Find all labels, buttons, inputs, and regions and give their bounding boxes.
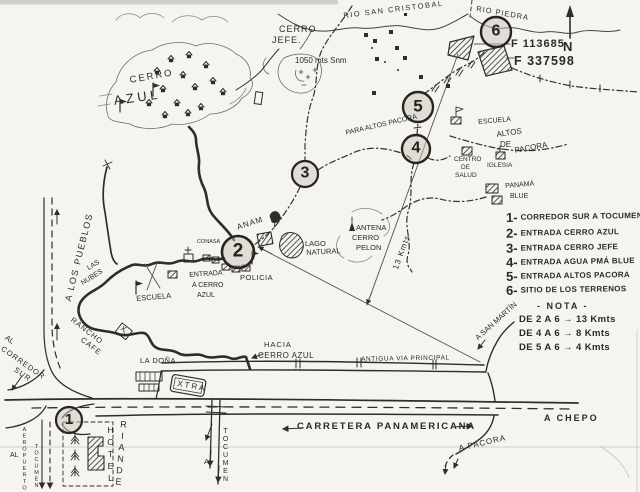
- label-altos-2: DE: [500, 141, 511, 149]
- survey-lines: [258, 54, 480, 362]
- line-13km: [367, 54, 458, 305]
- label-cerro-pelon-1: CERRO: [352, 234, 379, 242]
- trail-hut: [254, 92, 263, 105]
- legend-item-text: ENTRADA AGUA PMÁ BLUE: [521, 256, 635, 267]
- trail-ties: [413, 61, 600, 136]
- label-f1: F 113685: [511, 39, 565, 50]
- trail-panama-blue: [382, 197, 486, 220]
- label-a-tocumen: TOCUMEN: [222, 428, 229, 484]
- label-conasa: CONASA: [197, 240, 220, 246]
- legend-item-number: 2-: [506, 226, 518, 241]
- legend-item-text: ENTRADA CERRO AZUL: [521, 227, 620, 237]
- label-entrada-2: A CERRO: [192, 282, 224, 289]
- marker-number-6: 6: [492, 23, 501, 41]
- label-entrada-3: AZUL: [197, 292, 215, 299]
- legend-item-number: 5-: [506, 269, 518, 284]
- label-panama-blue-2: BLUE: [510, 193, 528, 200]
- road-antigua-via: [156, 358, 495, 401]
- legend-item-text: SITIO DE LOS TERRENOS: [521, 284, 627, 294]
- hand-drawn-map: RIO PIEDRA F 113685 F 337598 N RIO SAN C…: [0, 0, 640, 492]
- legend-item-number: 6-: [506, 283, 518, 298]
- trail-5-to-6: [424, 51, 485, 94]
- label-a-tocumen-a: A: [204, 458, 209, 466]
- legend-item-text: CORREDOR SUR A TOCUMEN: [521, 211, 640, 222]
- label-antena: ANTENA: [356, 224, 386, 232]
- label-centro-3: SALUD: [455, 173, 477, 180]
- scattered-houses: [364, 13, 450, 95]
- trail-site-east: [512, 68, 638, 92]
- cluster-boundary: [106, 43, 252, 129]
- legend-note-1: DE 2 A 6 → 13 Kmts: [519, 314, 616, 325]
- lago-natural: [280, 233, 304, 258]
- legend-note-2: DE 4 A 6 → 8 Kmts: [519, 328, 610, 339]
- legend-item-1: 1- CORREDOR SUR A TOCUMEN: [506, 208, 640, 225]
- escuela-pacora-building: [451, 117, 461, 124]
- trail-to-jefe: [236, 49, 279, 90]
- trail-4-to-5: [417, 122, 418, 135]
- legend-note-3: DE 5 A 6 → 4 Kmts: [519, 342, 610, 353]
- label-cerro-jefe-1: CERRO: [279, 25, 317, 34]
- trail-3-to-4: [318, 148, 412, 170]
- label-lago-2: NATURAL: [306, 247, 341, 256]
- label-compass-n: N: [563, 40, 572, 53]
- antena-icon: [349, 217, 355, 231]
- label-al-aeropuerto-3: TOCUMEN: [33, 444, 39, 490]
- label-cerro-jefe-2: JEFE.: [272, 36, 302, 45]
- marker-number-1: 1: [65, 411, 73, 428]
- legend-item-number: 1-: [506, 210, 518, 225]
- label-a-chepo: A CHEPO: [544, 414, 599, 423]
- label-al-aeropuerto-1: AL: [10, 452, 19, 459]
- label-f2: F 337598: [514, 55, 575, 68]
- label-hacia: HACIA: [264, 341, 292, 349]
- marker-number-5: 5: [413, 97, 422, 117]
- label-cerro-pelon-2: PELON: [356, 244, 381, 252]
- school-left: [136, 263, 177, 294]
- marker-number-3: 3: [301, 165, 310, 183]
- road-las-nubes: [103, 167, 117, 264]
- label-centro-2: DE: [461, 165, 470, 172]
- legend-item-6: 6- SITIO DE LOS TERRENOS: [506, 281, 627, 298]
- label-centro-1: CENTRO: [454, 157, 481, 164]
- label-policia: POLICIA: [240, 274, 273, 282]
- anam-building: [257, 232, 273, 246]
- label-carretera: CARRETERA PANAMERICANA: [297, 422, 476, 432]
- label-cerro-jefe-elev: 1050 mts Snm: [295, 57, 347, 65]
- clouds: [116, 14, 228, 23]
- label-hacia-2: CERRO AZUL: [258, 352, 314, 360]
- legend-item-2: 2- ENTRADA CERRO AZUL: [506, 224, 619, 241]
- road-corredor-left: [42, 198, 62, 488]
- marker-number-2: 2: [233, 241, 244, 263]
- legend-item-number: 3-: [506, 241, 518, 256]
- legend-item-text: ENTRADA ALTOS PACORA: [521, 270, 631, 281]
- legend-item-number: 4-: [506, 255, 518, 270]
- label-iglesia: IGLESIA: [487, 163, 512, 170]
- label-la-dona: LA DOÑA: [140, 357, 176, 365]
- centro-salud-building: [462, 147, 472, 155]
- marker-number-4: 4: [412, 140, 421, 158]
- rancho-cafe-building: [115, 323, 132, 340]
- label-al-aeropuerto-2: AEROPUERTO: [21, 427, 27, 492]
- panama-blue-buildings: [486, 184, 502, 204]
- legend-nota-title: - NOTA -: [537, 302, 589, 311]
- legend-item-text: ENTRADA CERRO JEFE: [521, 242, 619, 252]
